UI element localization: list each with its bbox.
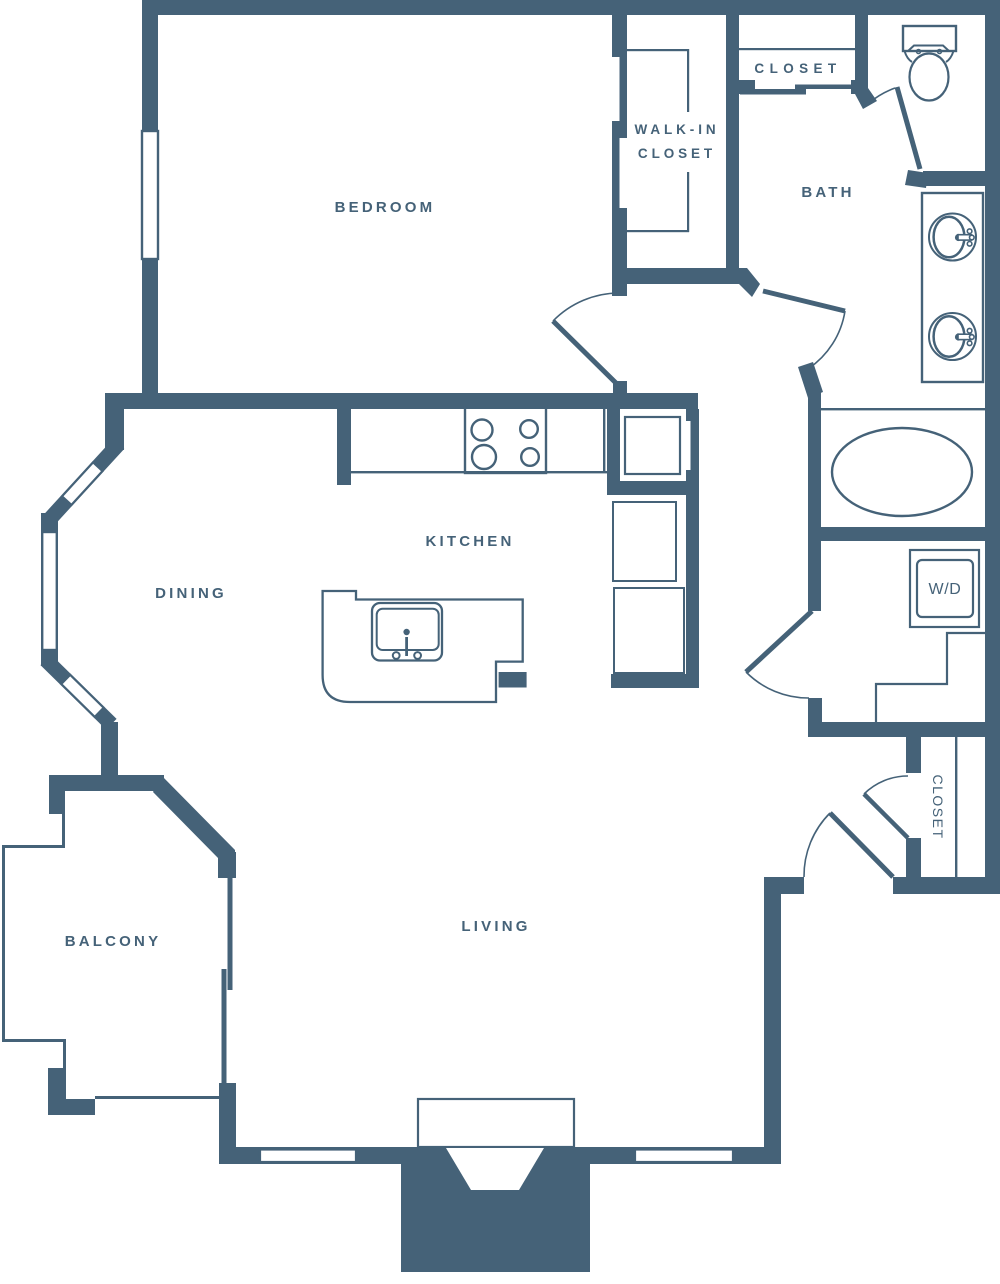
- svg-text:KITCHEN: KITCHEN: [425, 533, 514, 550]
- svg-text:WALK-IN: WALK-IN: [634, 122, 719, 137]
- svg-text:BATH: BATH: [801, 184, 854, 201]
- svg-text:DINING: DINING: [155, 585, 227, 602]
- svg-text:W/D: W/D: [929, 581, 962, 598]
- svg-text:BEDROOM: BEDROOM: [335, 199, 436, 216]
- svg-text:LIVING: LIVING: [461, 918, 530, 935]
- svg-text:BALCONY: BALCONY: [65, 933, 162, 950]
- svg-text:CLOSET: CLOSET: [930, 774, 946, 839]
- svg-text:CLOSET: CLOSET: [754, 61, 841, 76]
- svg-text:CLOSET: CLOSET: [638, 146, 716, 161]
